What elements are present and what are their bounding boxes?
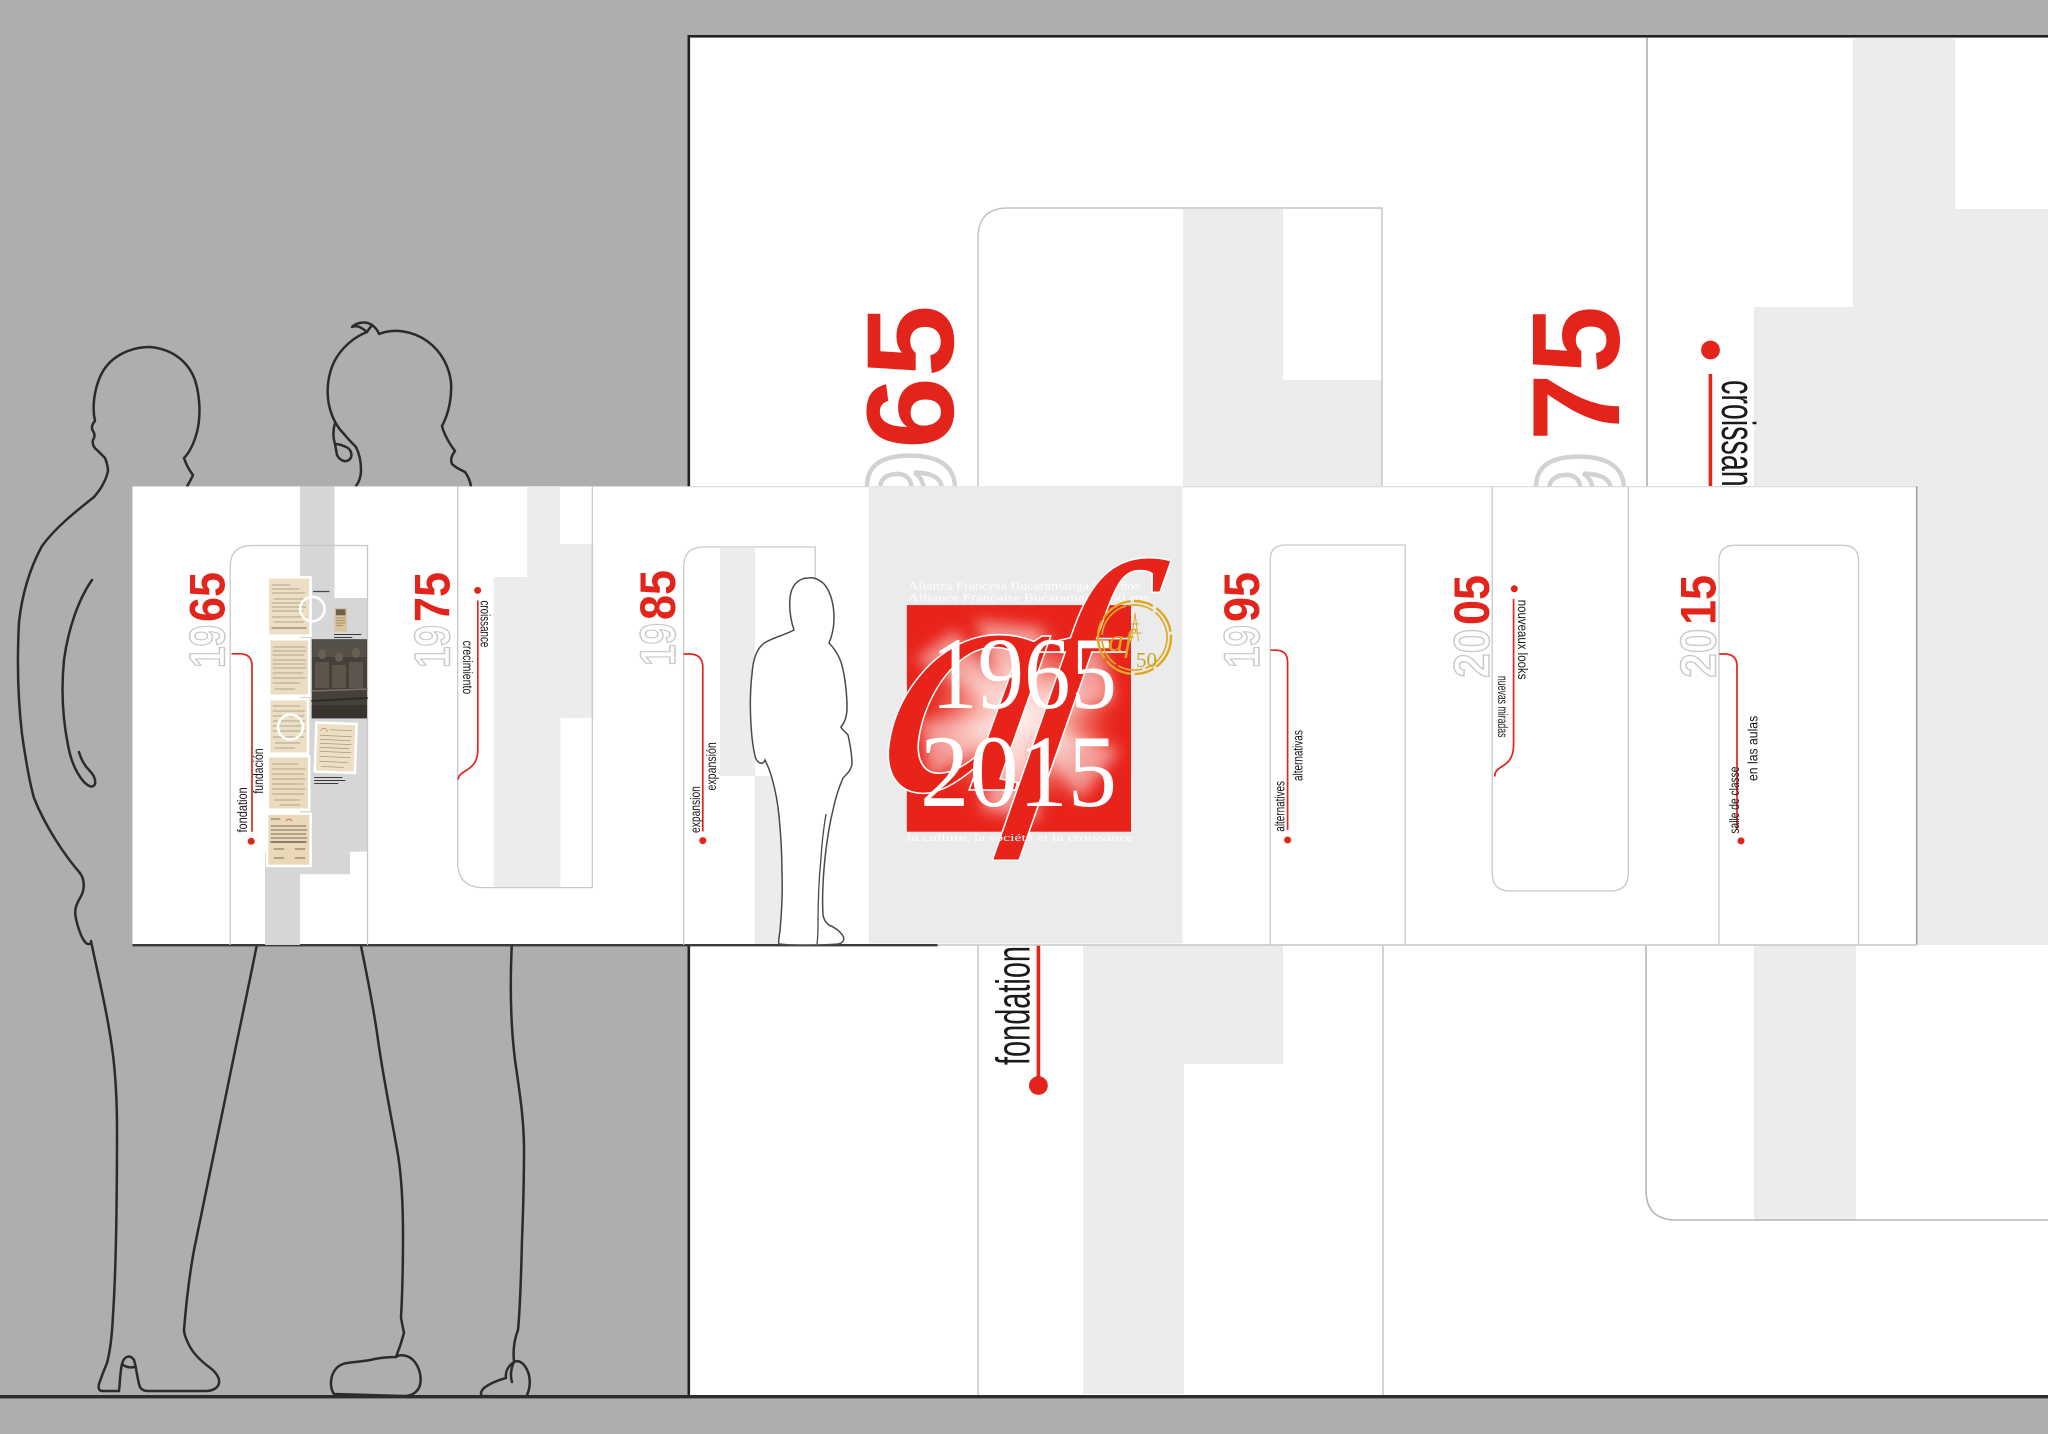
svg-text:alternatives: alternatives [1272, 781, 1287, 832]
svg-text:nuevas miradas: nuevas miradas [1495, 676, 1510, 738]
svg-text:19: 19 [1214, 625, 1270, 668]
svg-text:19: 19 [179, 625, 235, 668]
svg-text:19: 19 [630, 623, 686, 666]
svg-text:croissance: croissance [477, 601, 492, 648]
svg-text:75: 75 [1508, 306, 1646, 441]
svg-text:75: 75 [404, 572, 460, 622]
svg-text:la culture, la société et la c: la culture, la société et la croissance [907, 833, 1134, 844]
svg-text:20: 20 [1444, 629, 1500, 678]
svg-text:fondation: fondation [235, 787, 250, 832]
svg-text:95: 95 [1214, 572, 1270, 622]
svg-text:salle de classe: salle de classe [1727, 767, 1742, 834]
svg-text:fondation: fondation [987, 946, 1040, 1065]
svg-text:en las aulas: en las aulas [1745, 716, 1760, 781]
svg-text:05: 05 [1444, 575, 1500, 625]
svg-text:af: af [1108, 622, 1137, 658]
svg-text:expansion: expansion [688, 786, 703, 833]
svg-text:19: 19 [404, 625, 460, 668]
svg-text:15: 15 [1671, 575, 1727, 625]
svg-text:alternativas: alternativas [1290, 730, 1305, 781]
svg-text:85: 85 [630, 570, 686, 620]
svg-text:fundación: fundación [251, 748, 266, 793]
svg-text:crecimiento: crecimiento [460, 641, 475, 695]
svg-text:65: 65 [179, 572, 235, 622]
svg-text:50: 50 [1136, 648, 1157, 672]
svg-text:20: 20 [1671, 629, 1727, 678]
svg-text:65: 65 [842, 305, 980, 449]
svg-text:expansión: expansión [704, 742, 719, 790]
svg-text:nouveaux looks: nouveaux looks [1515, 600, 1530, 680]
